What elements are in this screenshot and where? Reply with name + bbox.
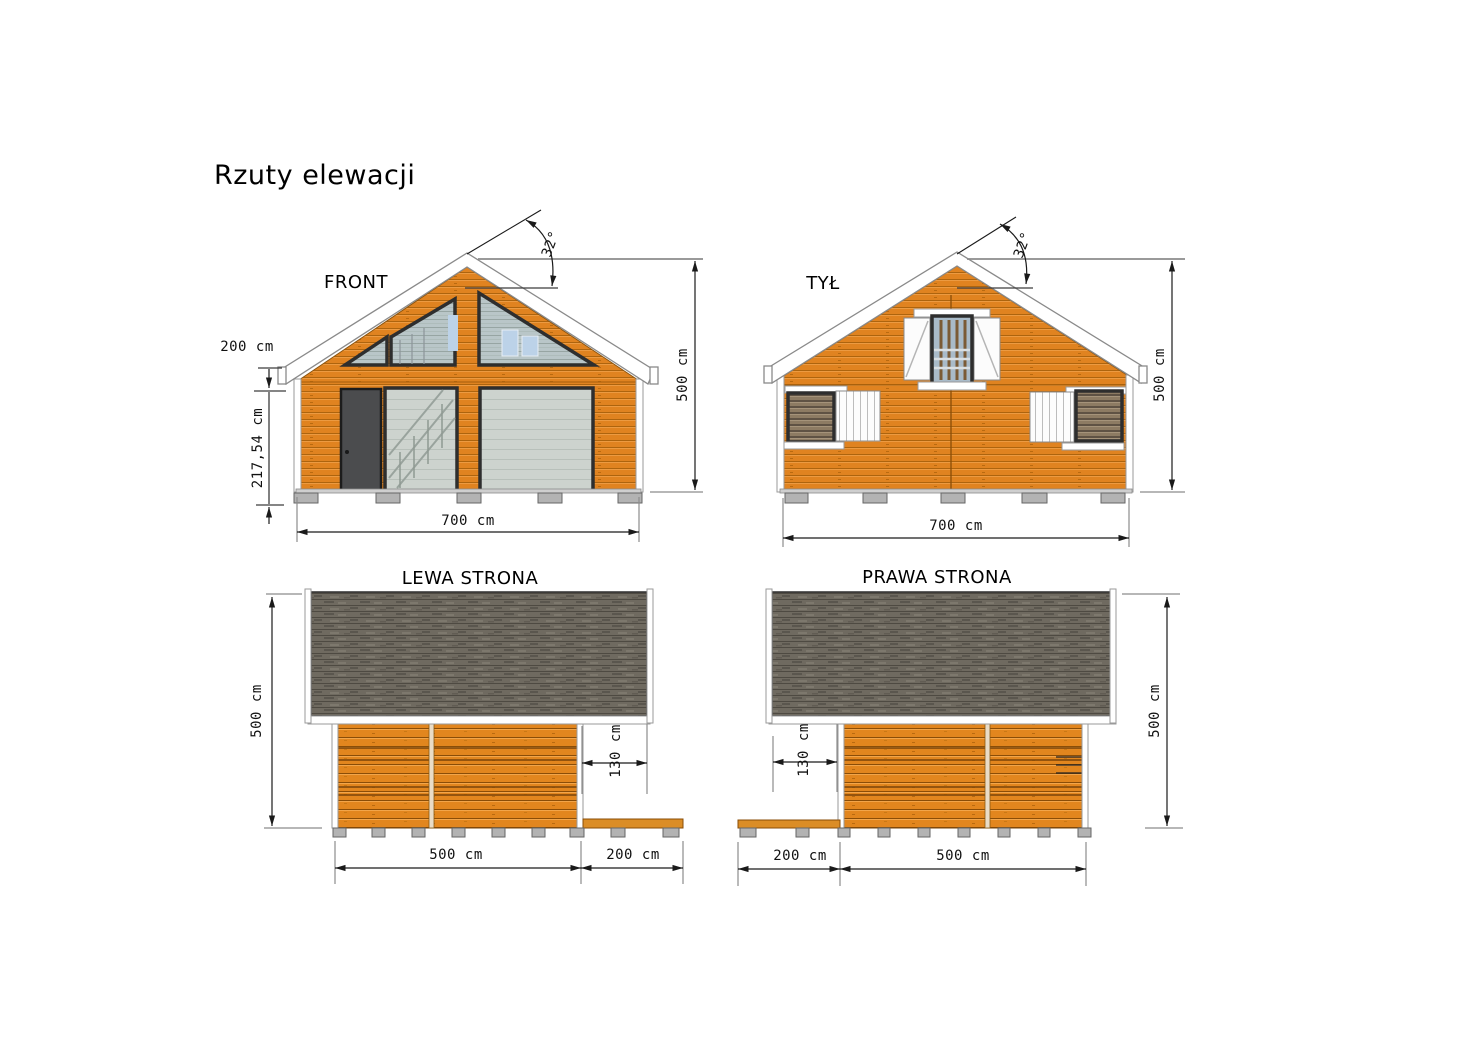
front-eave-offset-label: 200 cm <box>210 339 284 355</box>
left-side-elevation <box>305 589 683 837</box>
right-terrace-length-label: 200 cm <box>763 848 837 864</box>
back-view-label: TYŁ <box>773 273 873 294</box>
left-roof <box>311 592 647 716</box>
left-total-height-label: 500 cm <box>249 671 265 751</box>
back-foundation-blocks <box>785 493 1125 503</box>
front-view-label: FRONT <box>306 272 406 293</box>
right-roof <box>772 592 1113 716</box>
front-stair-window <box>385 388 457 491</box>
front-width-label: 700 cm <box>431 513 505 529</box>
right-side-elevation <box>738 589 1116 837</box>
right-terrace-deck <box>738 820 840 828</box>
front-foundation-blocks <box>294 493 642 503</box>
left-terrace-deck <box>583 819 683 828</box>
back-total-height-label: 500 cm <box>1152 335 1168 415</box>
front-total-height-label: 500 cm <box>675 335 691 415</box>
elevation-sheet: Rzuty elewacji FRONT TYŁ LEWA STRONA PRA… <box>0 0 1484 1054</box>
right-foundation-blocks <box>740 828 1091 837</box>
left-terrace-length-label: 200 cm <box>596 847 670 863</box>
right-wall <box>843 723 1088 828</box>
back-right-window <box>1030 387 1126 450</box>
door-handle <box>345 450 349 454</box>
back-gable-window <box>904 309 1000 390</box>
right-roof-overhang-label: 130 cm <box>796 710 812 790</box>
right-total-height-label: 500 cm <box>1147 671 1163 751</box>
left-body-length-label: 500 cm <box>419 847 493 863</box>
left-roof-overhang-label: 130 cm <box>608 711 624 791</box>
back-width-label: 700 cm <box>919 518 993 534</box>
page-title: Rzuty elewacji <box>214 160 415 191</box>
left-wall <box>338 723 578 828</box>
front-picture-window <box>480 388 593 491</box>
elevation-drawing <box>0 0 1484 1054</box>
left-view-label: LEWA STRONA <box>390 568 550 589</box>
right-body-length-label: 500 cm <box>926 848 1000 864</box>
front-door <box>341 389 381 491</box>
right-view-label: PRAWA STRONA <box>857 567 1017 588</box>
left-foundation-blocks <box>333 828 679 837</box>
back-left-window <box>784 386 880 449</box>
front-wall-height-label: 217,54 cm <box>250 398 266 498</box>
